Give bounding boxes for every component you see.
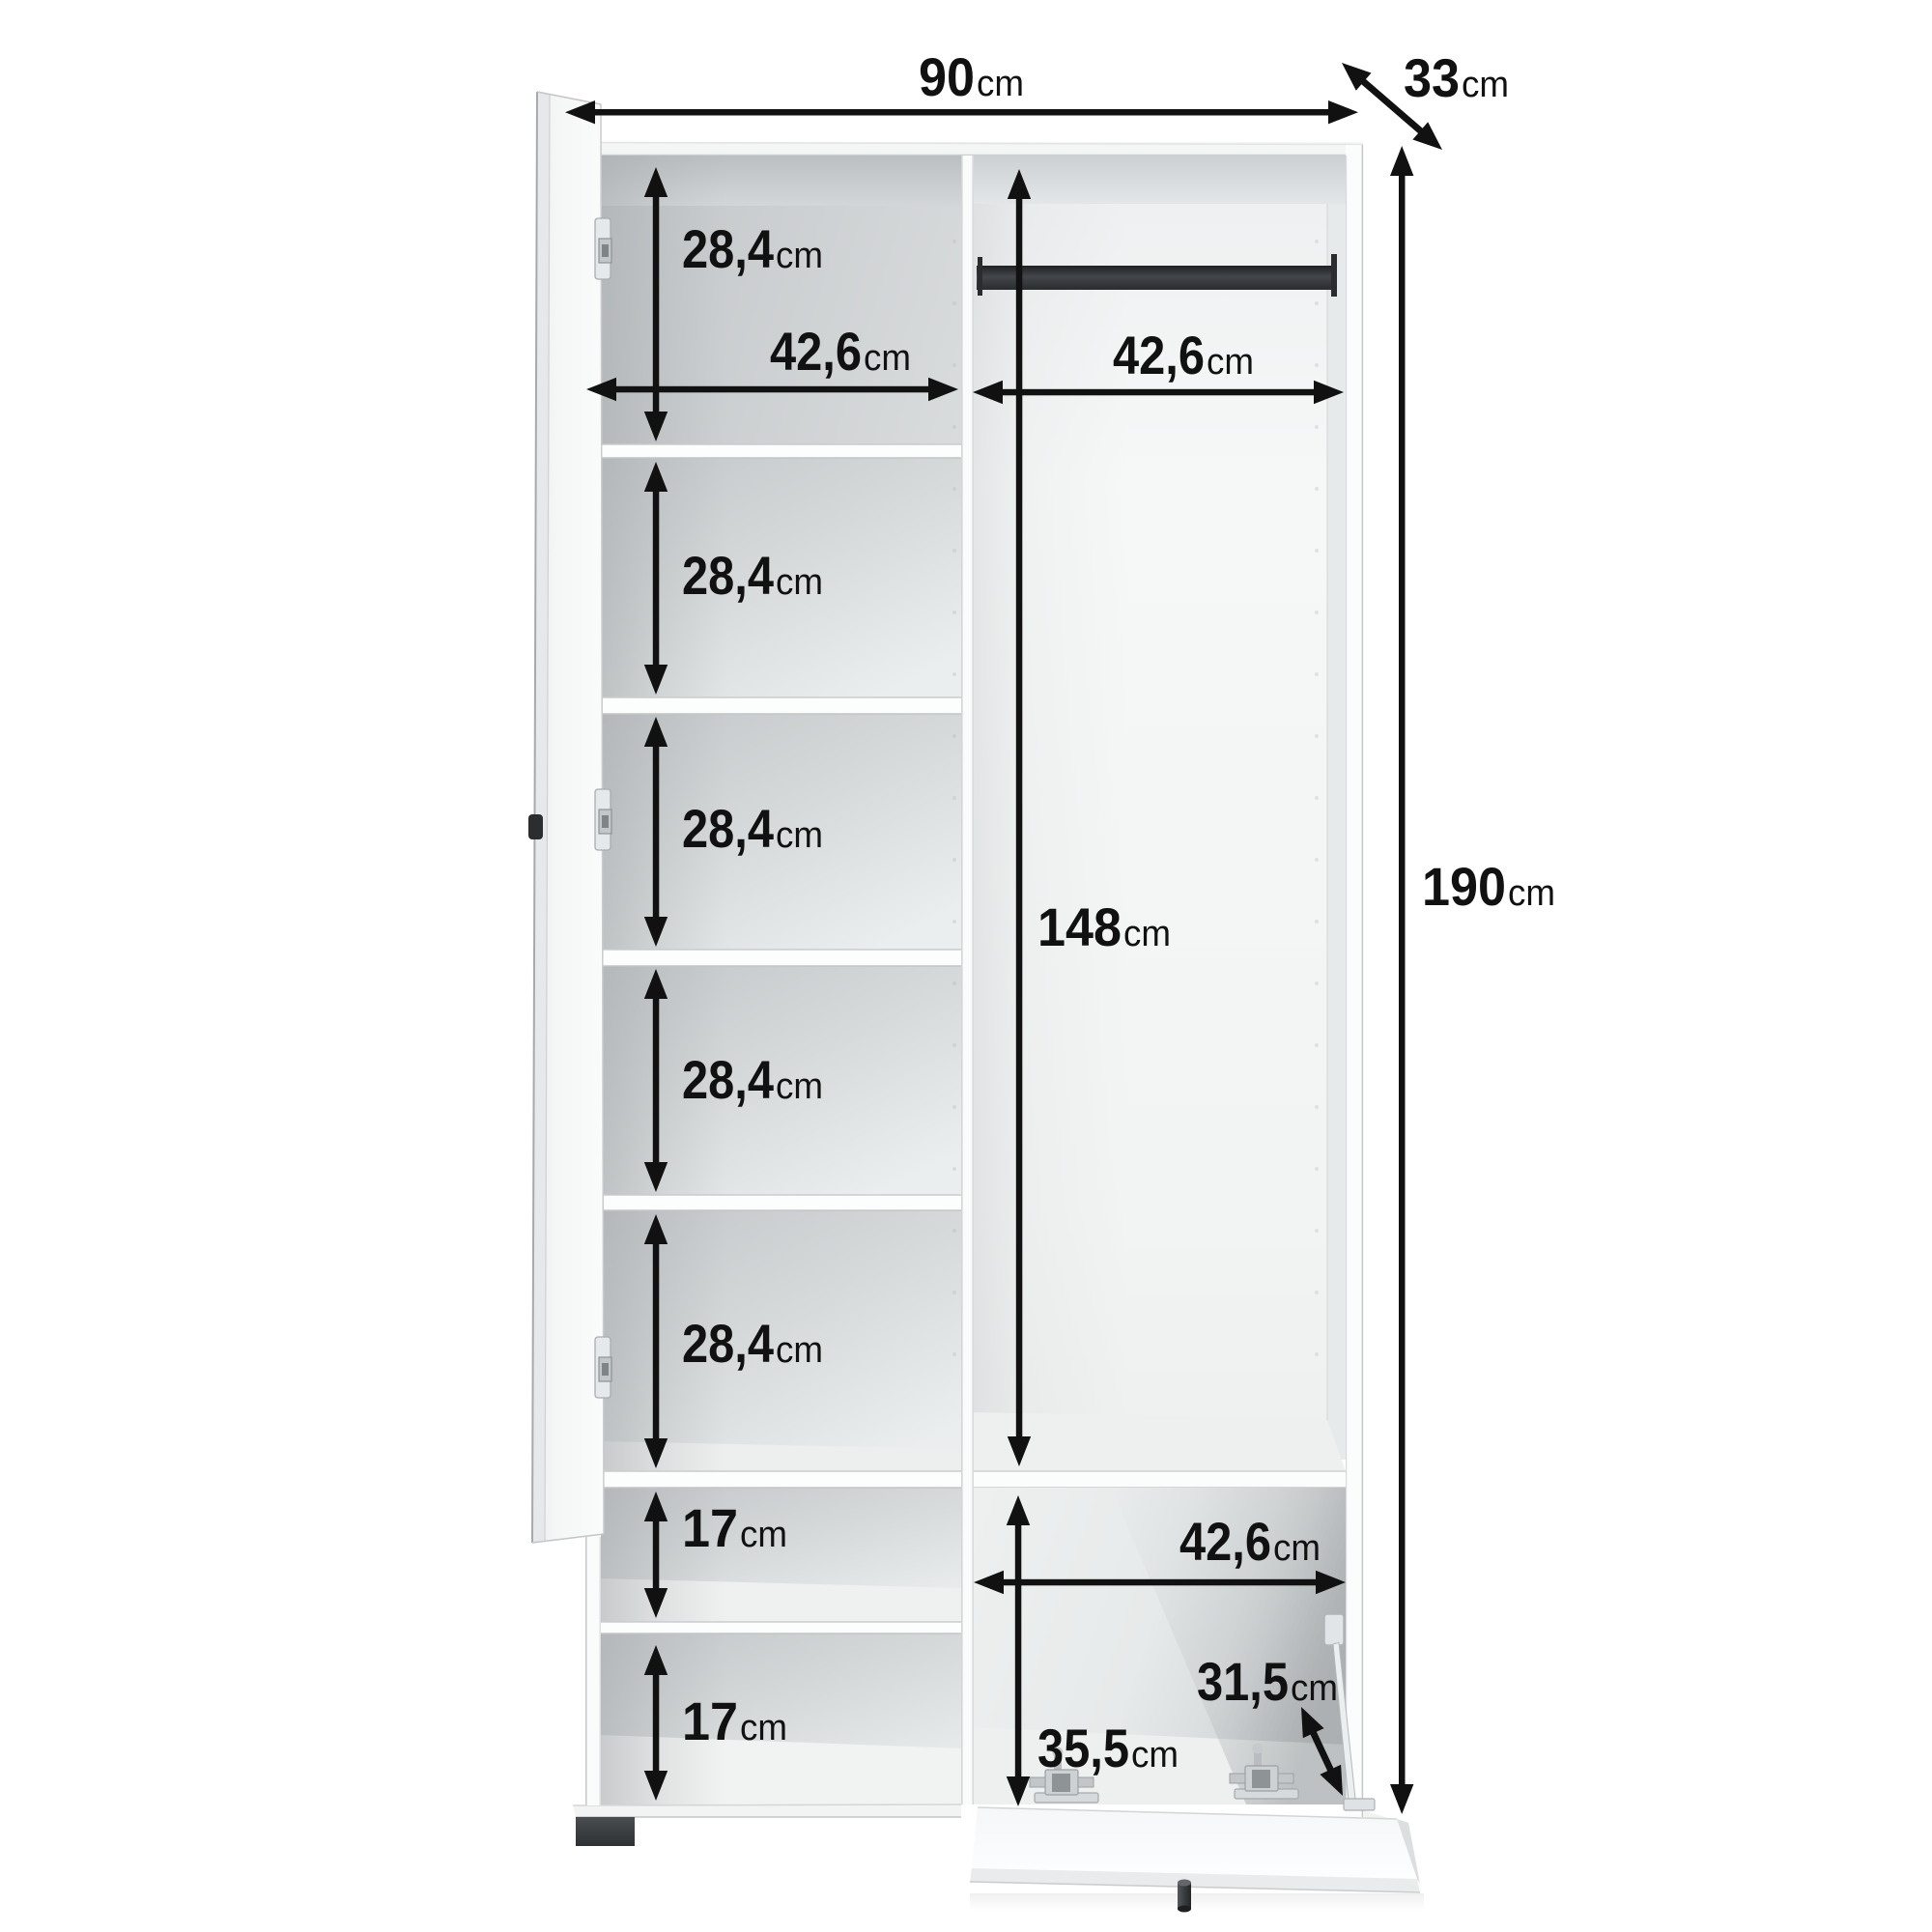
svg-text:cm: cm — [1131, 1735, 1179, 1776]
svg-text:cm: cm — [977, 64, 1024, 104]
svg-text:cm: cm — [740, 1708, 787, 1748]
svg-text:cm: cm — [1291, 1668, 1338, 1709]
svg-text:28,4: 28,4 — [682, 1313, 774, 1374]
svg-text:28,4: 28,4 — [682, 218, 774, 279]
svg-text:cm: cm — [776, 815, 823, 856]
svg-text:cm: cm — [776, 562, 823, 603]
svg-text:42,6: 42,6 — [1113, 325, 1205, 385]
svg-text:17: 17 — [682, 1497, 738, 1558]
svg-text:cm: cm — [740, 1515, 787, 1555]
svg-text:cm: cm — [776, 236, 823, 276]
svg-text:cm: cm — [776, 1330, 823, 1371]
svg-text:35,5: 35,5 — [1037, 1718, 1129, 1778]
svg-text:190: 190 — [1422, 856, 1506, 917]
svg-text:33: 33 — [1404, 47, 1460, 108]
svg-text:28,4: 28,4 — [682, 1049, 774, 1110]
svg-text:cm: cm — [1123, 914, 1171, 954]
svg-text:148: 148 — [1037, 896, 1122, 957]
svg-text:cm: cm — [1273, 1528, 1321, 1569]
svg-text:90: 90 — [919, 46, 975, 107]
svg-text:cm: cm — [1508, 873, 1555, 914]
svg-text:42,6: 42,6 — [770, 321, 862, 382]
svg-text:cm: cm — [776, 1066, 823, 1107]
svg-text:42,6: 42,6 — [1179, 1511, 1271, 1572]
svg-text:cm: cm — [1462, 65, 1509, 105]
svg-text:17: 17 — [682, 1690, 738, 1751]
svg-text:cm: cm — [1207, 342, 1254, 383]
svg-text:31,5: 31,5 — [1197, 1651, 1289, 1712]
svg-text:28,4: 28,4 — [682, 545, 774, 606]
svg-text:28,4: 28,4 — [682, 798, 774, 859]
svg-text:cm: cm — [864, 338, 911, 379]
